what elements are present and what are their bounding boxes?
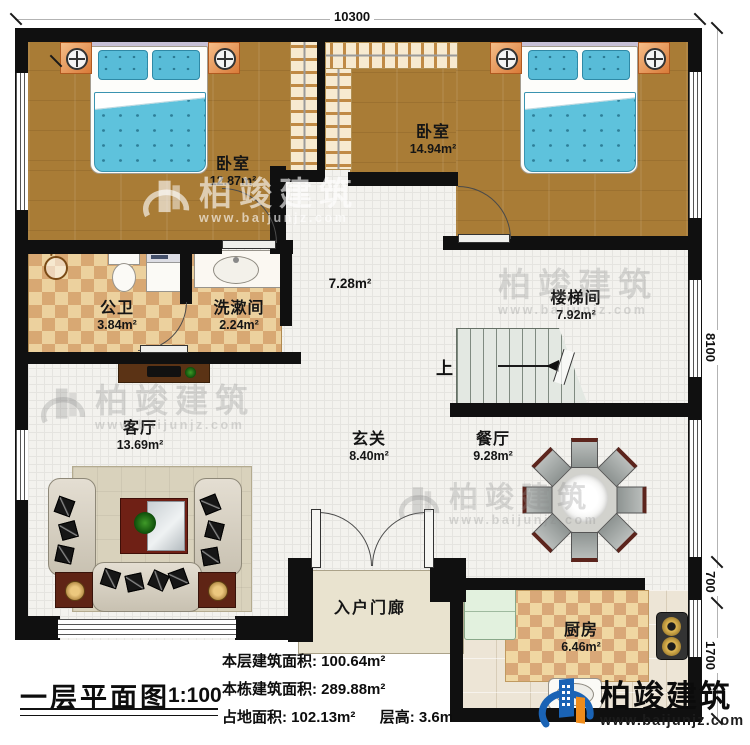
bed-bedroom2 bbox=[520, 40, 638, 174]
stat-value: 3.6m bbox=[419, 709, 453, 726]
lamp-icon bbox=[208, 581, 228, 601]
stairs-up-label: 上 bbox=[436, 354, 453, 379]
stat-value: 102.13m² bbox=[291, 709, 355, 726]
stat-value: 100.64m² bbox=[321, 653, 385, 670]
stat-label: 本栋建筑面积: bbox=[222, 681, 317, 698]
bedroom1-name: 卧室 bbox=[210, 150, 257, 174]
plant-icon bbox=[185, 367, 196, 378]
logo-name: 柏竣建筑 bbox=[600, 681, 744, 714]
sofa-pillow bbox=[54, 544, 74, 564]
foyer-name: 玄关 bbox=[349, 425, 389, 449]
bed-bedroom1 bbox=[90, 40, 208, 174]
end-table bbox=[198, 572, 236, 608]
floor-plan: 卧室 12.87m² 卧室 14.94m² 公卫 3.84m² 洗漱间 2.24… bbox=[0, 0, 750, 745]
dining-chair bbox=[571, 438, 598, 468]
toilet bbox=[112, 263, 136, 292]
dining-chair bbox=[617, 487, 647, 514]
fridge bbox=[464, 586, 516, 640]
window bbox=[689, 280, 701, 377]
wardrobe-bedroom2-horizontal bbox=[325, 42, 458, 69]
kitchen-name: 厨房 bbox=[561, 616, 601, 640]
nightstand bbox=[638, 42, 670, 74]
sofa-pillow bbox=[201, 547, 221, 567]
stat-label: 层高: bbox=[380, 709, 415, 726]
wall bbox=[180, 252, 192, 304]
lamp-icon bbox=[65, 581, 85, 601]
plant-icon bbox=[134, 512, 156, 534]
bedroom2-area: 14.94m² bbox=[410, 142, 457, 156]
porch-label: 入户门廊 bbox=[334, 594, 406, 618]
window bbox=[689, 600, 701, 657]
door-leaf bbox=[311, 509, 321, 568]
window bbox=[689, 72, 701, 218]
fridge-divider bbox=[465, 611, 515, 612]
door-leaf bbox=[222, 240, 276, 249]
pillow bbox=[528, 50, 578, 80]
burner-icon bbox=[662, 637, 681, 656]
bathroom-name: 公卫 bbox=[97, 294, 137, 318]
stat-floor-area: 本层建筑面积: 100.64m² bbox=[222, 650, 453, 671]
logo-building-icon bbox=[538, 672, 594, 738]
bedroom1-area: 12.87m² bbox=[210, 174, 257, 188]
wall bbox=[15, 352, 301, 364]
bathroom-area: 3.84m² bbox=[97, 318, 137, 332]
logo-url: www.baijunjz.com bbox=[600, 713, 744, 729]
dining-chair bbox=[523, 487, 553, 514]
lamp-icon bbox=[66, 48, 88, 70]
kitchen-area: 6.46m² bbox=[561, 640, 601, 654]
plan-scale: 1:100 bbox=[168, 684, 222, 708]
lamp-icon bbox=[496, 48, 518, 70]
lamp-icon bbox=[644, 48, 666, 70]
dimension-line-right bbox=[717, 28, 718, 720]
room-label-stairwell: 楼梯间 7.92m² bbox=[550, 284, 601, 322]
duvet-fold bbox=[94, 92, 206, 111]
wall bbox=[15, 616, 60, 640]
end-table bbox=[55, 572, 93, 608]
room-label-bedroom1: 卧室 12.87m² bbox=[210, 150, 257, 188]
wall bbox=[462, 578, 645, 590]
room-label-foyer: 玄关 8.40m² bbox=[349, 425, 389, 463]
stove bbox=[656, 612, 688, 660]
wardrobe-bedroom1 bbox=[290, 40, 319, 172]
lamp-icon bbox=[214, 48, 236, 70]
tv-console bbox=[118, 362, 210, 383]
dimension-right-lower: 1700 bbox=[703, 638, 718, 673]
wall bbox=[348, 172, 458, 186]
dining-area: 9.28m² bbox=[473, 449, 513, 463]
bed-duvet bbox=[94, 92, 206, 172]
stairwell-name: 楼梯间 bbox=[550, 284, 601, 308]
shower-icon bbox=[44, 256, 68, 280]
nightstand bbox=[490, 42, 522, 74]
window bbox=[16, 73, 28, 210]
stat-value: 289.88m² bbox=[321, 681, 385, 698]
washroom-area: 2.24m² bbox=[213, 318, 264, 332]
nightstand bbox=[208, 42, 240, 74]
door-leaf bbox=[140, 345, 188, 353]
stats-block: 本层建筑面积: 100.64m² 本栋建筑面积: 289.88m² 占地面积: … bbox=[222, 650, 453, 734]
room-label-dining: 餐厅 9.28m² bbox=[473, 425, 513, 463]
wall bbox=[317, 28, 325, 180]
room-label-kitchen: 厨房 6.46m² bbox=[561, 616, 601, 654]
title-underline bbox=[20, 708, 218, 716]
pillow bbox=[582, 50, 630, 80]
dimension-right-middle: 700 bbox=[703, 568, 718, 596]
washroom-name: 洗漱间 bbox=[213, 294, 264, 318]
hallway-area: 7.28m² bbox=[329, 276, 372, 291]
sofa-pillow bbox=[124, 572, 144, 592]
washer-slot bbox=[151, 255, 168, 259]
stat-land-area: 占地面积: 102.13m² 层高: 3.6m bbox=[222, 706, 453, 727]
bedroom2-name: 卧室 bbox=[410, 118, 457, 142]
window bbox=[16, 430, 28, 500]
washroom-counter bbox=[194, 250, 284, 288]
window bbox=[58, 619, 236, 638]
duvet-fold bbox=[524, 92, 636, 111]
dimension-top: 10300 bbox=[330, 9, 374, 24]
stairs-direction-line bbox=[498, 365, 548, 367]
room-label-washroom: 洗漱间 2.24m² bbox=[213, 294, 264, 332]
burner-icon bbox=[662, 617, 681, 636]
wall bbox=[235, 616, 301, 640]
stat-label: 本层建筑面积: bbox=[222, 653, 317, 670]
dining-name: 餐厅 bbox=[473, 425, 513, 449]
foyer-area: 8.40m² bbox=[349, 449, 389, 463]
room-label-bathroom: 公卫 3.84m² bbox=[97, 294, 137, 332]
stat-label: 占地面积: bbox=[222, 709, 287, 726]
door-leaf bbox=[424, 509, 434, 568]
wall bbox=[280, 252, 292, 326]
dining-chair bbox=[571, 532, 598, 562]
window bbox=[689, 420, 701, 557]
living-name: 客厅 bbox=[117, 414, 164, 438]
stairwell-area: 7.92m² bbox=[550, 308, 601, 322]
pillow bbox=[152, 50, 200, 80]
room-label-living: 客厅 13.69m² bbox=[117, 414, 164, 452]
dining-table-top bbox=[560, 474, 608, 522]
stat-building-area: 本栋建筑面积: 289.88m² bbox=[222, 678, 453, 699]
living-area: 13.69m² bbox=[117, 438, 164, 452]
wall bbox=[450, 403, 690, 417]
pillow bbox=[98, 50, 148, 80]
nightstand bbox=[60, 42, 92, 74]
wall bbox=[283, 170, 325, 182]
door-leaf bbox=[458, 234, 510, 243]
room-label-bedroom2: 卧室 14.94m² bbox=[410, 118, 457, 156]
dimension-right-upper: 8100 bbox=[703, 330, 718, 365]
bed-duvet bbox=[524, 92, 636, 172]
company-logo: 柏竣建筑 www.baijunjz.com bbox=[538, 672, 744, 738]
wall bbox=[15, 28, 702, 42]
tv-icon bbox=[147, 366, 181, 377]
faucet-icon bbox=[233, 257, 239, 263]
